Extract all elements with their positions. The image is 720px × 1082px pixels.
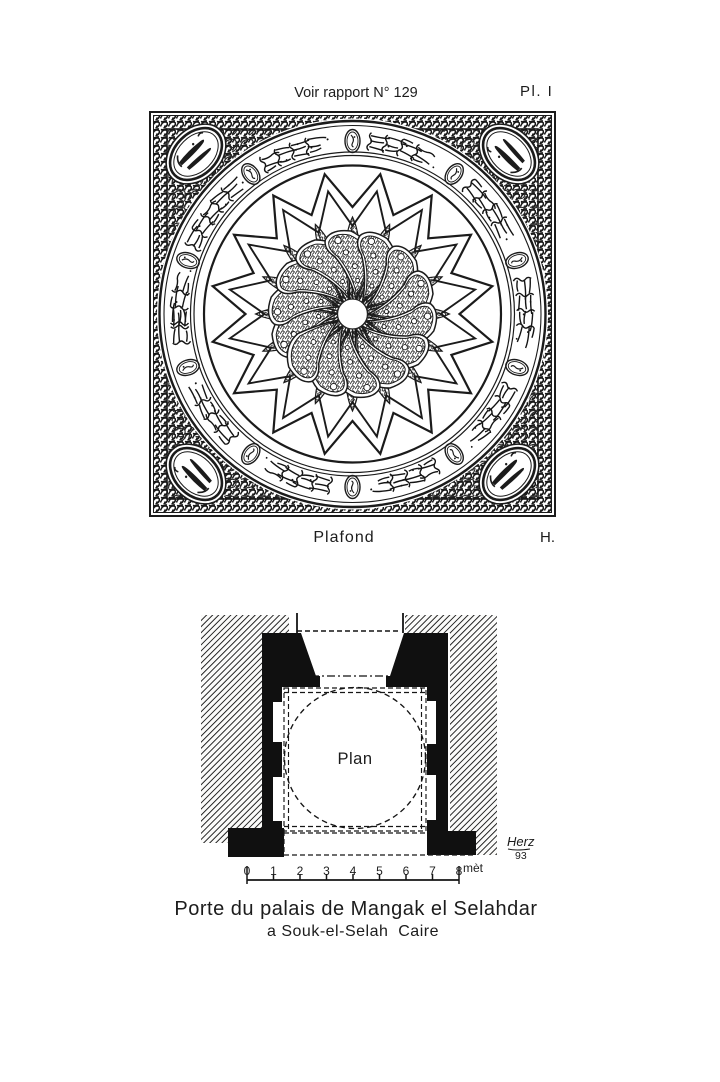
svg-text:Plan: Plan — [337, 750, 372, 768]
svg-text:4: 4 — [350, 864, 357, 878]
svg-text:mèt: mèt — [463, 861, 484, 875]
svg-text:0: 0 — [244, 864, 251, 878]
svg-text:a Souk-el-Selah Caire: a Souk-el-Selah Caire — [267, 923, 439, 940]
svg-text:Herz: Herz — [507, 834, 535, 849]
svg-text:8: 8 — [456, 864, 463, 878]
svg-text:H.: H. — [540, 529, 555, 546]
svg-text:Voir rapport N° 129: Voir rapport N° 129 — [294, 85, 417, 101]
svg-text:3: 3 — [323, 864, 330, 878]
svg-text:2: 2 — [297, 864, 304, 878]
svg-text:7: 7 — [429, 864, 436, 878]
svg-text:6: 6 — [403, 864, 410, 878]
svg-text:Plafond: Plafond — [313, 529, 374, 546]
svg-text:93: 93 — [515, 850, 527, 862]
svg-text:1: 1 — [270, 864, 277, 878]
svg-text:5: 5 — [376, 864, 383, 878]
svg-text:Pl. I: Pl. I — [520, 83, 553, 100]
svg-text:Porte du palais de Mangak el S: Porte du palais de Mangak el Selahdar — [174, 898, 537, 920]
